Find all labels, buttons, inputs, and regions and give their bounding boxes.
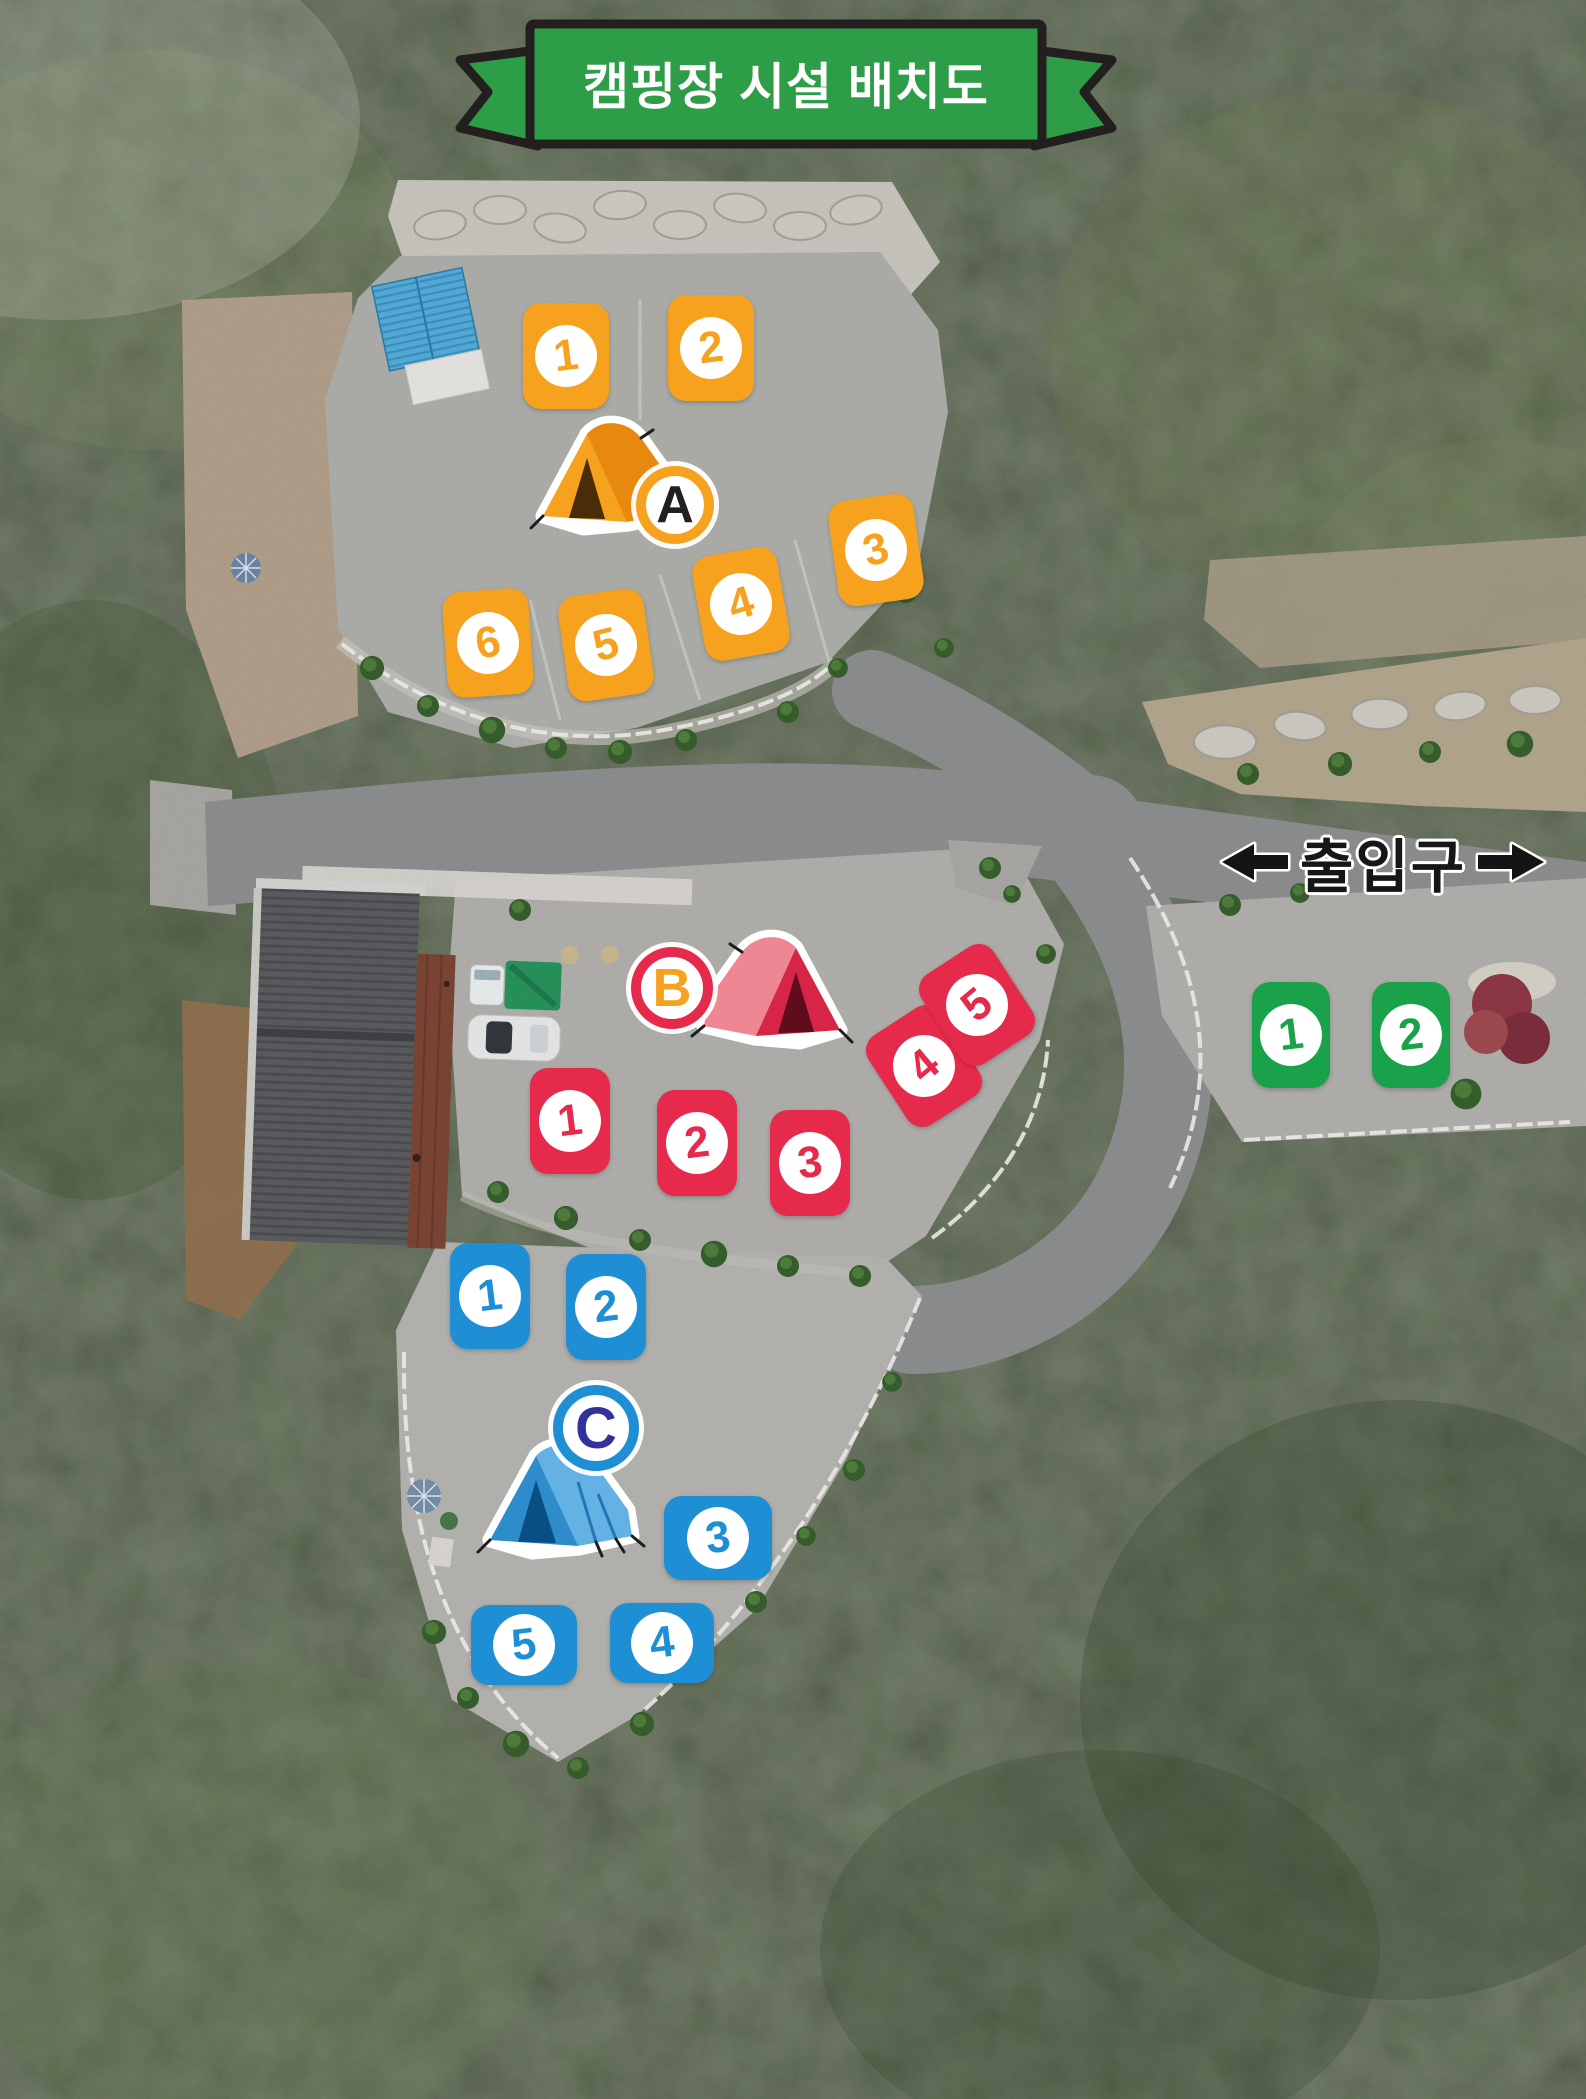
zone-label: A: [656, 475, 694, 535]
zone-c-badge: C: [553, 1385, 639, 1471]
site-number: 4: [627, 1608, 696, 1677]
site-number: 3: [775, 1128, 844, 1197]
site-number: 2: [676, 313, 745, 382]
site-marker-b1: 1: [530, 1068, 610, 1174]
site-marker-b3: 3: [770, 1110, 850, 1216]
site-number: 6: [452, 607, 525, 680]
site-marker-c4: 4: [610, 1603, 714, 1683]
entrance-sign: 출입구: [1218, 820, 1548, 904]
site-marker-a1: 1: [523, 303, 609, 409]
site-number: 1: [531, 321, 600, 390]
entrance-label: 출입구: [1300, 820, 1466, 904]
site-number: 1: [535, 1086, 604, 1155]
site-number: 3: [683, 1503, 752, 1572]
site-marker-a4: 4: [689, 544, 792, 663]
site-number: 2: [662, 1108, 731, 1177]
red-tent-icon: [688, 918, 860, 1070]
site-marker-green1: 1: [1252, 982, 1330, 1088]
zone-label: B: [653, 957, 692, 1019]
site-number: 2: [1376, 1000, 1445, 1069]
site-number: 5: [568, 607, 644, 683]
title-banner: 캠핑장 시설 배치도: [452, 18, 1120, 152]
site-number: 5: [489, 1610, 558, 1679]
site-marker-c1: 1: [450, 1243, 530, 1349]
site-number: 4: [702, 565, 779, 642]
right-arrow-icon: [1474, 841, 1548, 883]
site-marker-a6: 6: [441, 587, 534, 699]
zone-a-badge: A: [636, 466, 714, 544]
site-marker-a5: 5: [556, 587, 656, 704]
zone-label: C: [575, 1395, 617, 1462]
zone-b-badge: B: [631, 947, 713, 1029]
campground-layout-map: 1 2 3 4 5 6 A 1 2 3 4 5 B 1 2 1 2 3: [0, 0, 1586, 2099]
page-title: 캠핑장 시설 배치도: [452, 18, 1120, 152]
site-marker-c3: 3: [664, 1496, 772, 1580]
site-number: 2: [571, 1272, 640, 1341]
site-marker-green2: 2: [1372, 982, 1450, 1088]
site-number: 1: [1256, 1000, 1325, 1069]
site-marker-a3: 3: [826, 492, 926, 609]
site-number: 5: [933, 961, 1020, 1048]
site-marker-a2: 2: [668, 295, 754, 401]
site-marker-c5: 5: [471, 1605, 577, 1685]
site-marker-c2: 2: [566, 1254, 646, 1360]
site-number: 1: [455, 1261, 524, 1330]
site-number: 3: [838, 512, 914, 588]
left-arrow-icon: [1218, 841, 1292, 883]
site-marker-b2: 2: [657, 1090, 737, 1196]
